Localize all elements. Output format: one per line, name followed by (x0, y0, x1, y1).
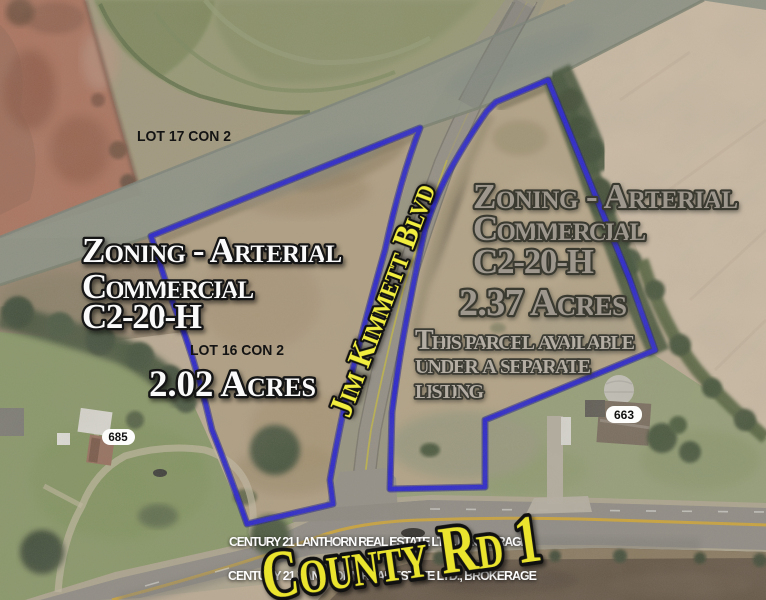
svg-text:C2-20-H: C2-20-H (473, 242, 594, 281)
svg-text:685: 685 (108, 432, 128, 444)
svg-text:LOT 17 CON 2: LOT 17 CON 2 (137, 128, 231, 145)
svg-text:2.37 Acres: 2.37 Acres (459, 282, 627, 324)
svg-text:2.02 Acres: 2.02 Acres (149, 364, 316, 405)
svg-text:Zoning - Arterial: Zoning - Arterial (82, 231, 342, 270)
svg-text:C2-20-H: C2-20-H (82, 297, 202, 336)
svg-text:listing: listing (415, 374, 484, 405)
svg-text:LOT 16 CON 2: LOT 16 CON 2 (190, 342, 284, 359)
svg-text:663: 663 (614, 408, 634, 422)
